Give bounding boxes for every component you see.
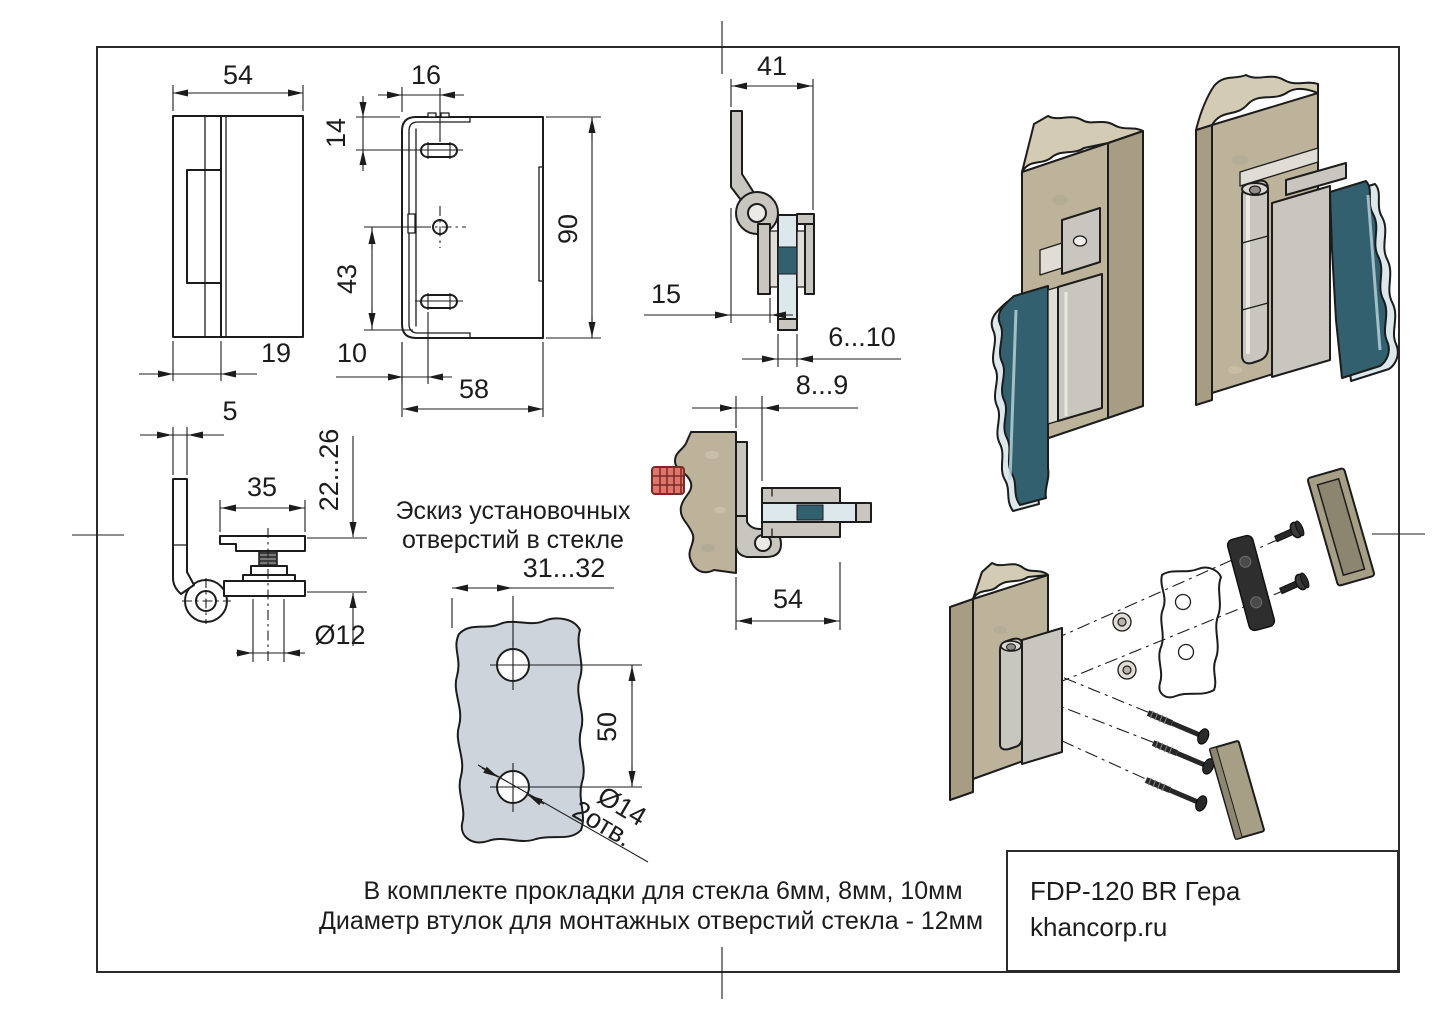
dim-leaf-width: 19 [261, 338, 291, 368]
dim-hole-spacing: 50 [592, 712, 622, 742]
dim-plate-height: 90 [553, 214, 583, 244]
dim-wood-glass-gap: 8...9 [796, 370, 849, 400]
sketch-title-line1: Эскиз установочных [396, 497, 631, 525]
dim-hole-offset: 31...32 [523, 553, 606, 583]
technical-drawing-canvas: 54 19 [0, 0, 1444, 1020]
title-block: FDP-120 BR Гера khancorp.ru [1007, 851, 1398, 971]
dim-clamp-pad-width: 35 [247, 472, 277, 502]
dim-leaf-to-clamp: 15 [651, 279, 681, 309]
note-line1: В комплекте прокладки для стекла 6мм, 8м… [363, 877, 962, 905]
website-link: khancorp.ru [1030, 912, 1167, 942]
dim-plate-width: 58 [459, 374, 489, 404]
dim-bushing-diameter: Ø12 [314, 620, 365, 650]
dim-leaf-thickness: 5 [222, 396, 237, 426]
wood-dowel-screw [652, 467, 684, 494]
dim-plate-hole-offset: 16 [411, 60, 441, 90]
note-line2: Диаметр втулок для монтажных отверстий с… [319, 907, 983, 935]
dim-plate-hole-to-bottom: 43 [332, 264, 362, 294]
dim-glass-thickness: 6...10 [828, 322, 896, 352]
product-name: FDP-120 BR Гера [1030, 876, 1241, 906]
technical-drawing-sheet: 54 19 [0, 0, 1444, 1020]
dim-side-depth: 41 [757, 51, 787, 81]
dim-front-width: 54 [223, 60, 253, 90]
dim-clamp-length: 54 [773, 584, 803, 614]
dim-plate-slot-left: 10 [337, 338, 367, 368]
dim-clamp-height: 22...26 [314, 429, 344, 512]
dim-plate-slot-top: 14 [321, 118, 351, 148]
sketch-title-line2: отверстий в стекле [402, 526, 624, 554]
